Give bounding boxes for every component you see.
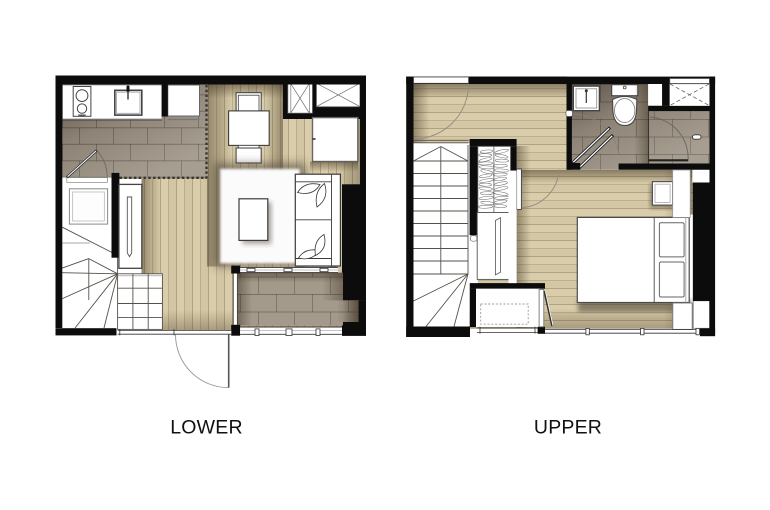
svg-text:UPPER: UPPER bbox=[534, 417, 602, 439]
svg-text:LOWER: LOWER bbox=[170, 417, 243, 439]
